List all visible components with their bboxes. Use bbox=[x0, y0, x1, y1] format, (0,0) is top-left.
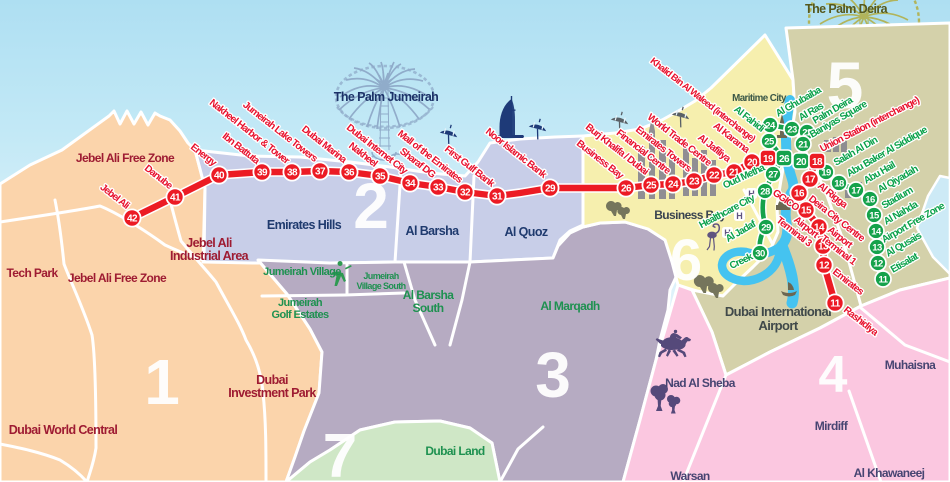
svg-text:11: 11 bbox=[830, 299, 841, 310]
svg-text:36: 36 bbox=[344, 168, 355, 179]
svg-text:Mirdiff: Mirdiff bbox=[815, 419, 849, 433]
svg-text:25: 25 bbox=[764, 137, 775, 148]
svg-text:Dubai World Central: Dubai World Central bbox=[9, 423, 118, 437]
svg-text:11: 11 bbox=[878, 275, 888, 286]
svg-text:7: 7 bbox=[323, 422, 357, 482]
svg-text:JumeirahVillage South: JumeirahVillage South bbox=[356, 271, 405, 291]
svg-text:20: 20 bbox=[796, 157, 807, 168]
svg-text:27: 27 bbox=[768, 170, 778, 181]
svg-text:29: 29 bbox=[761, 223, 771, 234]
svg-text:Al Khawaneej: Al Khawaneej bbox=[854, 466, 925, 480]
svg-text:16: 16 bbox=[865, 195, 875, 206]
svg-text:25: 25 bbox=[646, 181, 657, 192]
svg-text:Jumeirah Village: Jumeirah Village bbox=[263, 266, 341, 278]
svg-text:21: 21 bbox=[798, 140, 809, 151]
svg-text:17: 17 bbox=[851, 186, 861, 197]
svg-text:31: 31 bbox=[492, 192, 503, 203]
svg-text:4: 4 bbox=[819, 346, 848, 404]
svg-text:24: 24 bbox=[668, 180, 679, 191]
svg-text:3: 3 bbox=[535, 339, 571, 411]
svg-text:40: 40 bbox=[214, 171, 225, 182]
svg-text:12: 12 bbox=[873, 259, 883, 270]
svg-text:Maritime City: Maritime City bbox=[732, 93, 787, 104]
svg-text:35: 35 bbox=[375, 172, 386, 183]
svg-text:The Palm Deira: The Palm Deira bbox=[805, 2, 889, 16]
svg-text:Al Marqadh: Al Marqadh bbox=[540, 299, 600, 313]
svg-text:26: 26 bbox=[779, 154, 790, 165]
svg-text:34: 34 bbox=[405, 179, 416, 190]
svg-text:Al Quoz: Al Quoz bbox=[504, 225, 547, 239]
svg-text:Warsan: Warsan bbox=[670, 469, 710, 482]
svg-text:Dubai Land: Dubai Land bbox=[425, 444, 485, 458]
svg-text:28: 28 bbox=[760, 187, 770, 198]
svg-text:Nad Al Sheba: Nad Al Sheba bbox=[665, 376, 736, 390]
svg-text:1: 1 bbox=[144, 346, 180, 418]
svg-text:Muhaisna: Muhaisna bbox=[885, 358, 936, 372]
svg-text:23: 23 bbox=[787, 125, 797, 136]
svg-text:32: 32 bbox=[460, 188, 471, 199]
svg-text:6: 6 bbox=[670, 228, 702, 293]
svg-text:30: 30 bbox=[755, 249, 765, 260]
svg-text:Jebel Ali Free Zone: Jebel Ali Free Zone bbox=[76, 151, 175, 165]
svg-text:37: 37 bbox=[315, 167, 326, 178]
svg-text:15: 15 bbox=[869, 211, 880, 222]
svg-text:26: 26 bbox=[621, 184, 632, 195]
svg-text:18: 18 bbox=[834, 179, 844, 190]
svg-text:41: 41 bbox=[170, 193, 181, 204]
svg-text:24: 24 bbox=[765, 121, 776, 132]
svg-text:16: 16 bbox=[794, 189, 805, 200]
svg-text:13: 13 bbox=[872, 243, 882, 254]
svg-text:19: 19 bbox=[763, 154, 774, 165]
svg-text:12: 12 bbox=[819, 261, 830, 272]
svg-text:18: 18 bbox=[812, 157, 823, 168]
svg-text:The Palm Jumeirah: The Palm Jumeirah bbox=[334, 90, 438, 104]
svg-text:17: 17 bbox=[805, 175, 816, 186]
svg-text:33: 33 bbox=[433, 183, 444, 194]
svg-text:Jebel Ali Free Zone: Jebel Ali Free Zone bbox=[68, 271, 167, 285]
svg-text:29: 29 bbox=[545, 184, 556, 195]
svg-text:15: 15 bbox=[801, 206, 812, 217]
svg-text:Tech Park: Tech Park bbox=[6, 266, 58, 280]
svg-text:22: 22 bbox=[709, 171, 720, 182]
svg-text:Emirates Hills: Emirates Hills bbox=[267, 218, 342, 232]
svg-text:42: 42 bbox=[127, 214, 138, 225]
svg-text:23: 23 bbox=[689, 177, 700, 188]
svg-text:Al Barsha: Al Barsha bbox=[406, 224, 461, 238]
svg-text:JumeirahGolf Estates: JumeirahGolf Estates bbox=[272, 297, 329, 321]
svg-text:38: 38 bbox=[287, 168, 298, 179]
svg-text:39: 39 bbox=[257, 168, 268, 179]
